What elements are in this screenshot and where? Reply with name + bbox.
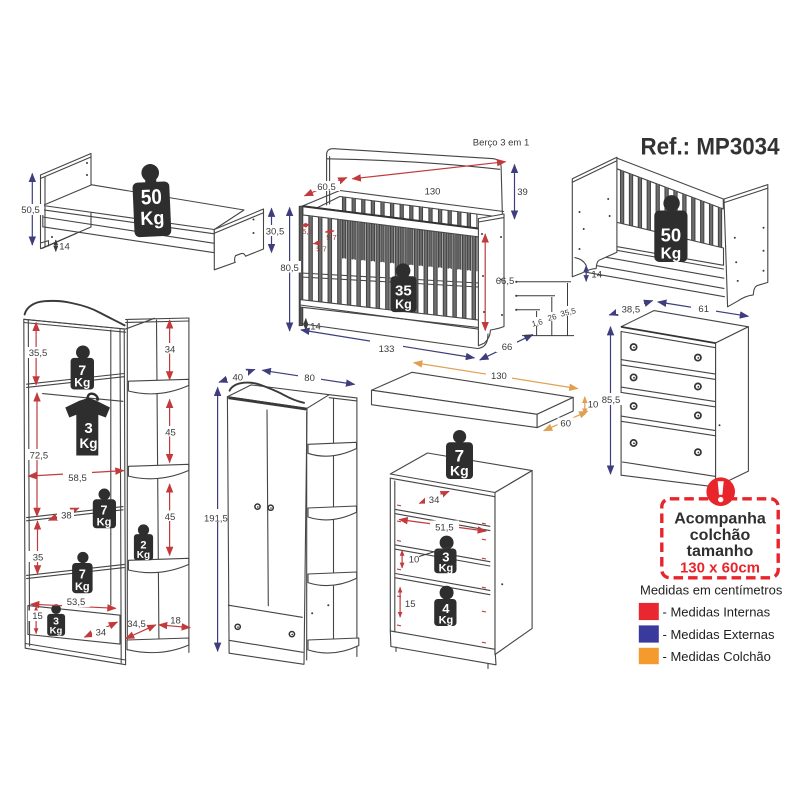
svg-text:191,5: 191,5 [204,513,228,524]
svg-text:14: 14 [591,270,602,281]
svg-text:- Medidas Externas: - Medidas Externas [663,627,775,642]
svg-text:Medidas em centímetros: Medidas em centímetros [640,583,783,598]
svg-text:53,5: 53,5 [67,597,86,608]
svg-text:5,5: 5,5 [302,227,312,236]
svg-text:72,5: 72,5 [30,450,49,461]
svg-text:Kg: Kg [661,246,682,263]
svg-text:51,5: 51,5 [435,522,454,533]
svg-text:50,5: 50,5 [21,205,40,216]
svg-text:- Medidas Internas: - Medidas Internas [663,605,771,620]
svg-text:50: 50 [140,186,162,210]
svg-text:Acompanha: Acompanha [674,511,766,528]
svg-text:58,5: 58,5 [68,473,87,484]
svg-text:45: 45 [165,512,176,523]
svg-text:15: 15 [32,611,43,622]
svg-text:10: 10 [409,555,420,566]
svg-text:7: 7 [101,504,108,518]
svg-text:14: 14 [310,321,321,332]
svg-text:Kg: Kg [395,298,412,312]
svg-text:61: 61 [698,304,709,315]
svg-text:50: 50 [661,225,682,246]
svg-text:Kg: Kg [439,615,454,627]
svg-text:Berço 3 em 1: Berço 3 em 1 [473,138,530,149]
svg-text:Ref.: MP3034: Ref.: MP3034 [641,134,781,161]
svg-text:40: 40 [233,373,244,384]
svg-text:14: 14 [59,242,70,253]
svg-text:34,5: 34,5 [127,619,146,630]
svg-text:Kg: Kg [75,581,90,593]
svg-text:colchão: colchão [690,527,751,544]
svg-text:Kg: Kg [97,517,112,529]
svg-text:85,5: 85,5 [602,395,621,406]
svg-text:3: 3 [84,420,92,437]
svg-text:5,7: 5,7 [326,233,336,242]
svg-text:Kg: Kg [80,436,98,451]
svg-text:130: 130 [425,187,441,198]
svg-text:80,5: 80,5 [280,263,299,274]
svg-text:60,5: 60,5 [317,182,336,193]
svg-text:130 x 60cm: 130 x 60cm [680,560,760,577]
svg-text:tamanho: tamanho [687,543,754,560]
svg-text:Kg: Kg [439,563,454,575]
svg-text:66: 66 [502,342,513,353]
svg-text:Kg: Kg [450,463,469,479]
svg-text:7: 7 [79,568,86,582]
svg-text:130: 130 [491,371,507,382]
svg-text:45: 45 [165,427,176,438]
svg-text:- Medidas Colchão: - Medidas Colchão [663,649,771,664]
svg-text:18: 18 [170,615,181,626]
svg-text:Kg: Kg [140,208,165,230]
svg-text:35: 35 [33,552,44,563]
svg-text:10: 10 [588,399,599,410]
svg-text:38: 38 [61,511,72,522]
svg-text:35,5: 35,5 [29,348,48,359]
svg-text:66,5: 66,5 [496,276,515,287]
svg-text:5,7: 5,7 [316,245,326,254]
svg-text:80: 80 [304,373,315,384]
svg-text:Kg: Kg [74,376,90,390]
svg-text:39: 39 [517,187,528,198]
svg-text:34: 34 [165,344,176,355]
svg-text:60: 60 [560,419,571,430]
svg-text:38,5: 38,5 [622,305,641,316]
svg-text:15: 15 [405,599,416,610]
svg-text:34: 34 [96,628,107,639]
svg-text:34: 34 [429,495,440,506]
svg-text:Kg: Kg [50,626,63,637]
svg-text:30,5: 30,5 [266,227,285,238]
svg-text:Kg: Kg [137,550,150,561]
svg-text:133: 133 [379,344,395,355]
